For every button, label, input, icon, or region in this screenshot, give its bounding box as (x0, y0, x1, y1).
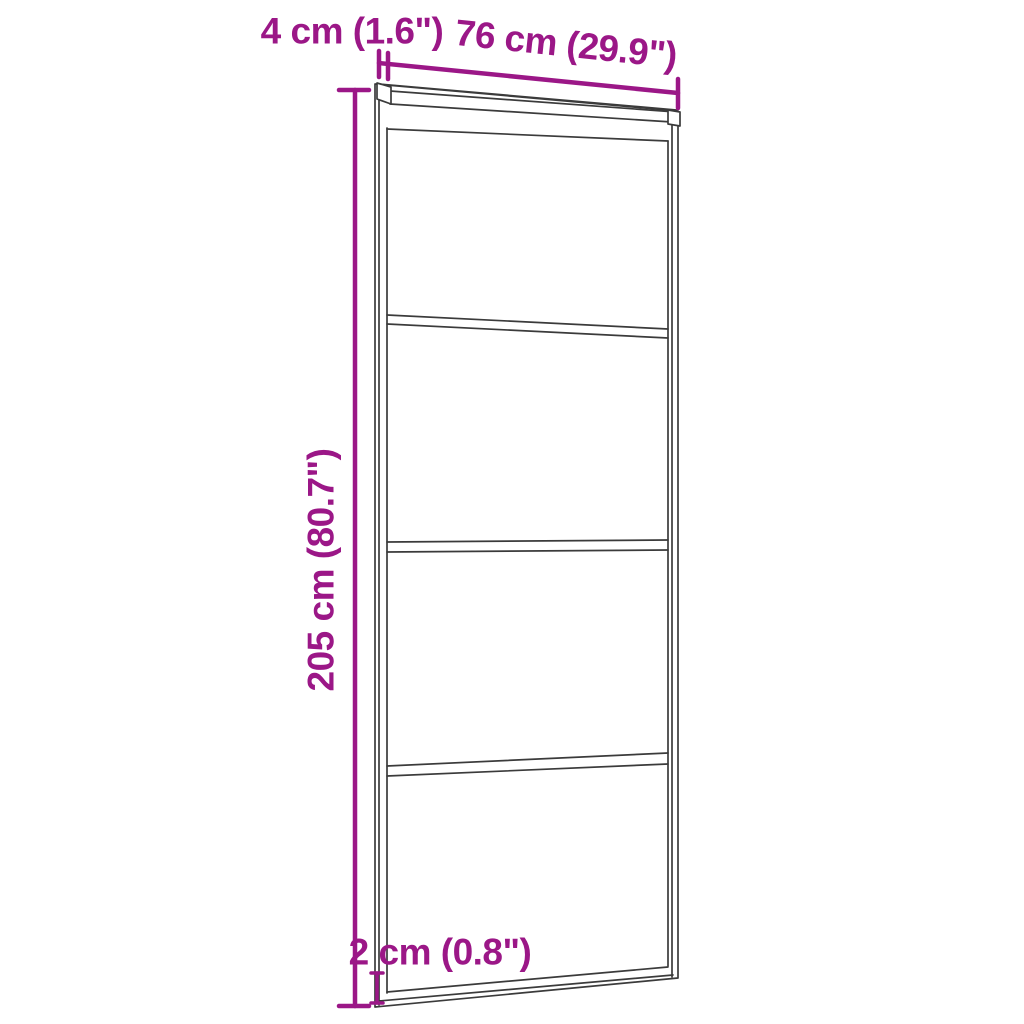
door-top-rail-right-cap (668, 110, 680, 126)
door-outline-group (375, 83, 680, 1007)
product-dimension-diagram: 4 cm (1.6") 76 cm (29.9") 205 cm (80.7")… (0, 0, 1024, 1024)
height-dimension-label: 205 cm (80.7") (303, 449, 340, 692)
top-rail-dimension-label: 4 cm (1.6") (261, 13, 444, 50)
door-silhouette (375, 84, 678, 1007)
door-drawing (0, 0, 1024, 1024)
bottom-rail-dimension-label: 2 cm (0.8") (349, 934, 532, 971)
